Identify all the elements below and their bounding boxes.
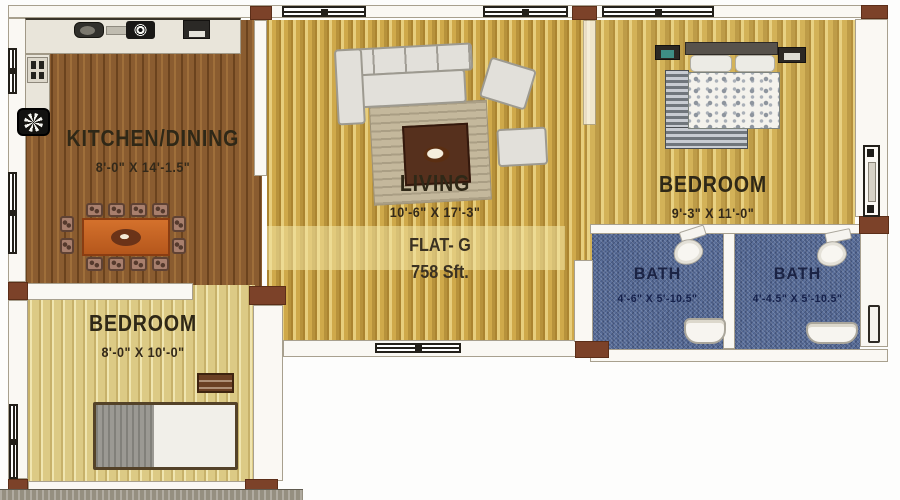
- wall-segment: [254, 20, 267, 176]
- wall-segment: [8, 5, 888, 18]
- dining-chair: [172, 238, 186, 254]
- pillow: [735, 55, 775, 72]
- pillow: [690, 55, 732, 72]
- window-icon: [282, 6, 366, 17]
- column: [249, 286, 286, 305]
- dining-chair: [60, 238, 74, 254]
- wall-segment: [590, 349, 888, 362]
- washbasin-icon: [806, 322, 858, 344]
- column: [859, 216, 889, 234]
- flat-name: FLAT- G: [377, 235, 503, 256]
- window-icon: [602, 6, 714, 17]
- room-dims: 9'-3" X 11'-0": [632, 205, 794, 221]
- bedside-table: [197, 373, 234, 393]
- door-icon: [863, 145, 880, 217]
- dining-chair: [60, 216, 74, 232]
- window-icon: [375, 343, 461, 353]
- dining-chair: [130, 257, 147, 271]
- duct-pipe: [868, 305, 880, 343]
- ground-strip: [0, 489, 303, 500]
- room-name: BEDROOM: [637, 171, 790, 198]
- nightstand: [655, 45, 680, 60]
- stove-burner-icon: [126, 21, 155, 39]
- room-dims: 8'-0" X 14'-1.5": [62, 159, 224, 175]
- room-dims: 8'-0" X 10'-0": [62, 344, 224, 360]
- armchair: [496, 127, 548, 168]
- dining-table: [82, 218, 170, 256]
- dining-chair: [152, 257, 169, 271]
- floor-plan: KITCHEN/DINING 8'-0" X 14'-1.5" LIVING 1…: [0, 0, 900, 500]
- column: [575, 341, 609, 358]
- bed-rail: [665, 127, 748, 149]
- window-icon: [483, 6, 568, 17]
- room-dims: 4'-6" X 5'-10.5": [595, 293, 719, 305]
- kitchen-label: KITCHEN/DINING 8'-0" X 14'-1.5": [53, 125, 233, 175]
- dining-chair: [130, 203, 147, 217]
- hob-icon: [27, 57, 48, 83]
- room-name: LIVING: [359, 170, 512, 197]
- sofa-arm: [334, 48, 366, 125]
- column: [572, 6, 597, 20]
- column: [250, 6, 272, 20]
- column: [861, 5, 888, 19]
- window-icon: [8, 48, 17, 94]
- bedroom-2-label: BEDROOM 8'-0" X 10'-0": [53, 310, 233, 360]
- room-name: BATH: [738, 264, 857, 284]
- kitchen-sink-icon: [74, 22, 104, 38]
- cooktop-star-icon: [17, 108, 50, 136]
- room-dims: 10'-6" X 17'-3": [354, 204, 516, 220]
- nightstand: [778, 47, 806, 63]
- bed-quilt: [688, 72, 780, 129]
- dining-chair: [86, 203, 103, 217]
- fridge-icon: [183, 20, 210, 39]
- bath-1-label: BATH 4'-6" X 5'-10.5": [592, 264, 723, 305]
- room-name: BATH: [595, 264, 719, 284]
- dining-chair: [152, 203, 169, 217]
- washbasin-icon: [684, 318, 726, 344]
- bath-door-opening: [574, 260, 593, 342]
- drainboard: [106, 26, 127, 35]
- dining-chair: [108, 257, 125, 271]
- window-icon: [8, 172, 17, 254]
- double-bed: [655, 42, 810, 154]
- armchair: [479, 56, 537, 110]
- room-name: BEDROOM: [67, 310, 220, 337]
- single-bed: [93, 402, 238, 470]
- flat-area: 758 Sft.: [377, 262, 503, 283]
- living-label: LIVING 10'-6" X 17'-3": [345, 170, 525, 220]
- window-icon: [9, 404, 18, 479]
- room-dims: 4'-4.5" X 5'-10.5": [738, 293, 857, 305]
- dining-chair: [172, 216, 186, 232]
- bedroom-1-label: BEDROOM 9'-3" X 11'-0": [623, 171, 803, 221]
- bed-headboard: [685, 42, 778, 55]
- room-name: KITCHEN/DINING: [67, 125, 220, 152]
- wall-segment: [253, 305, 283, 481]
- column: [8, 282, 28, 300]
- bath-2-label: BATH 4'-4.5" X 5'-10.5": [735, 264, 860, 305]
- flat-area-label: 758 Sft.: [370, 262, 510, 283]
- dining-chair: [108, 203, 125, 217]
- wall-segment: [583, 20, 596, 125]
- flat-name-label: FLAT- G: [370, 235, 510, 256]
- wall-segment: [25, 283, 193, 300]
- dining-chair: [86, 257, 103, 271]
